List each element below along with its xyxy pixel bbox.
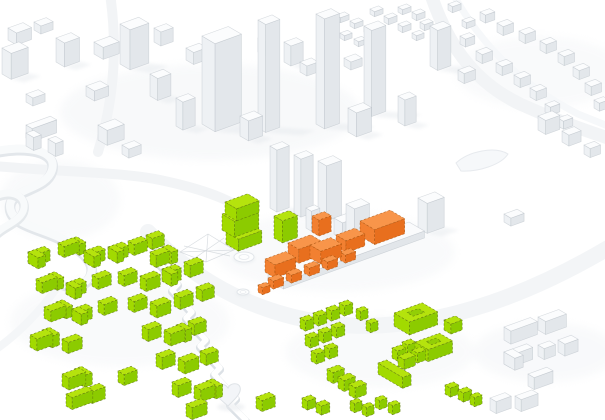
campus-south-green-building <box>470 392 482 406</box>
campus-south-green-building <box>316 400 330 415</box>
campus-south-green-building <box>458 387 472 402</box>
context-city-north-building <box>154 24 173 46</box>
city-model-render <box>0 0 605 420</box>
campus-south-green-building <box>324 343 338 359</box>
context-city-north-building <box>48 136 63 156</box>
campus-south-green-building <box>311 348 325 364</box>
campus-south-green-building <box>331 322 345 338</box>
campus-south-green-building <box>339 300 353 316</box>
campus-south-green-building <box>305 332 319 348</box>
campus-south-green-building <box>302 395 316 410</box>
campus-south-green-building <box>318 327 332 343</box>
campus-south-green-building <box>375 395 387 409</box>
campus-south-green-building <box>300 315 314 331</box>
campus-south-green-building <box>445 382 459 397</box>
campus-south-green-building <box>388 400 400 414</box>
campus-south-green-building <box>362 402 374 416</box>
site-orange-buildings-building <box>258 282 270 294</box>
campus-south-green-building <box>350 398 362 412</box>
campus-south-green-building <box>356 306 368 320</box>
campus-south-green-building <box>366 318 378 332</box>
campus-south-green-building <box>313 310 327 326</box>
campus-south-green-building <box>326 305 340 321</box>
massing-model-viewport <box>0 0 605 420</box>
context-city-north-building <box>26 130 41 150</box>
